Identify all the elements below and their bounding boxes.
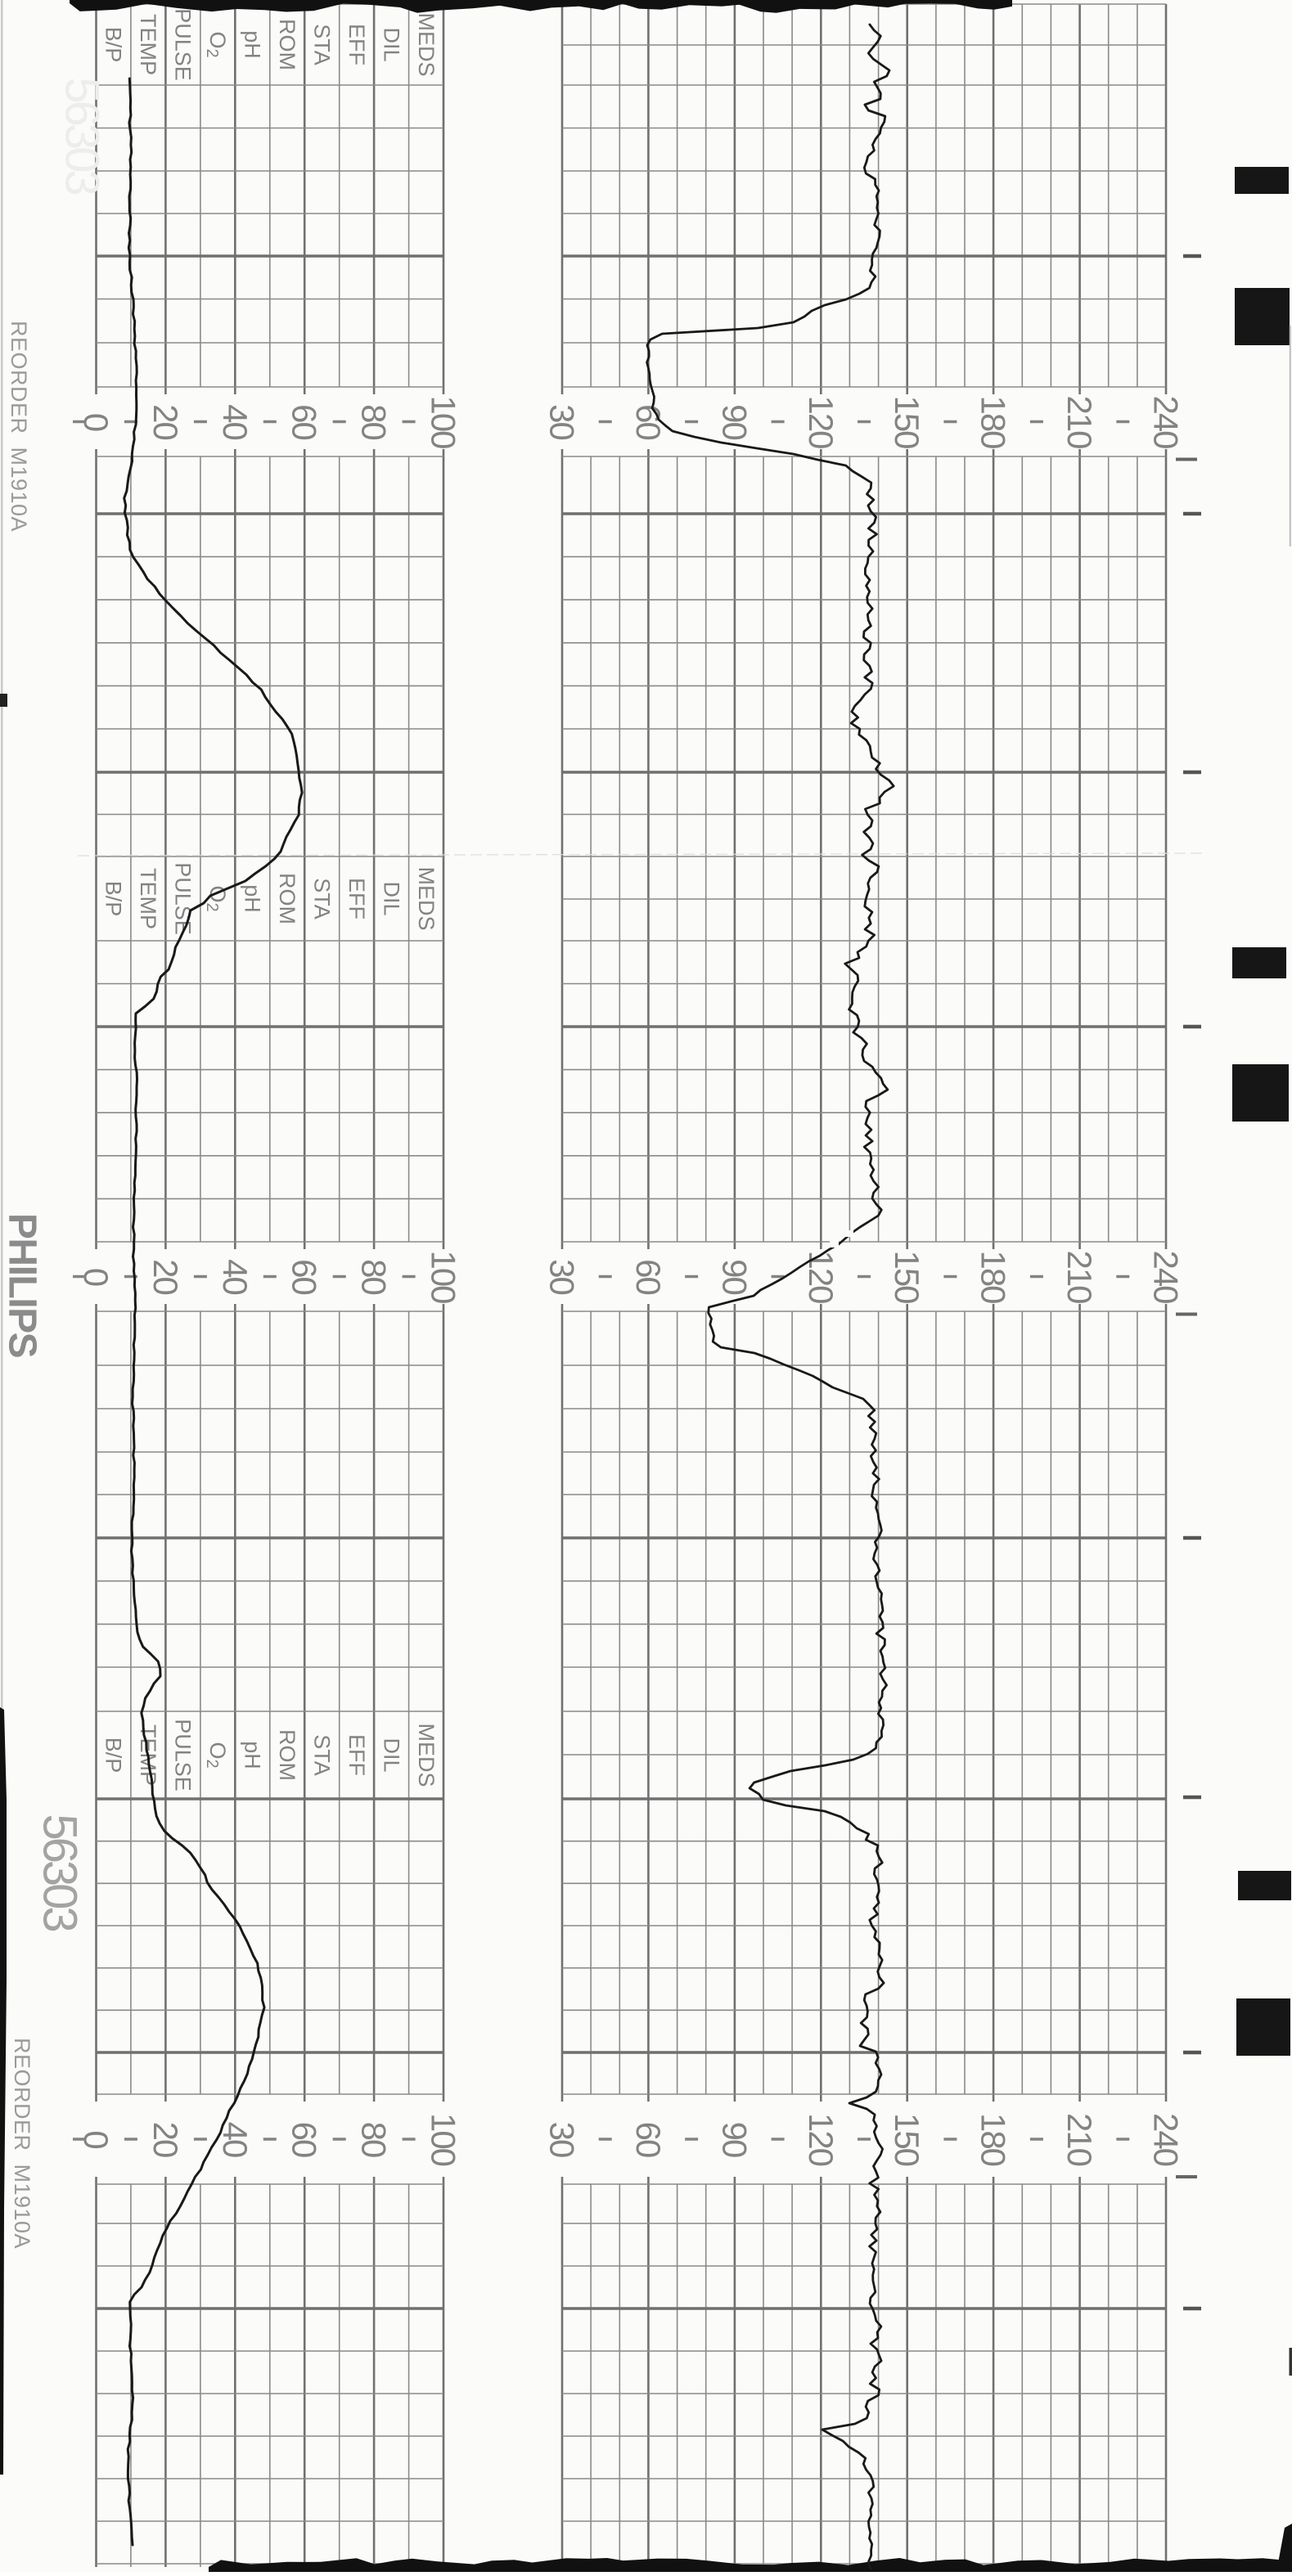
- svg-text:PULSE: PULSE: [171, 862, 196, 935]
- svg-text:PULSE: PULSE: [171, 8, 196, 81]
- svg-text:DIL: DIL: [379, 881, 403, 915]
- svg-text:MEDS: MEDS: [414, 1723, 439, 1787]
- svg-text:20: 20: [146, 2122, 185, 2157]
- svg-text:MEDS: MEDS: [414, 12, 439, 76]
- svg-text:30: 30: [543, 2122, 582, 2157]
- svg-text:STA: STA: [309, 1734, 334, 1776]
- svg-text:180: 180: [975, 1250, 1013, 1303]
- svg-text:REORDER M1910A: REORDER M1910A: [10, 2038, 34, 2249]
- svg-text:180: 180: [975, 2113, 1013, 2166]
- svg-text:pH: pH: [241, 884, 265, 913]
- svg-text:40: 40: [216, 404, 254, 439]
- svg-text:90: 90: [715, 404, 754, 439]
- svg-text:100: 100: [425, 2113, 463, 2166]
- svg-text:TEMP: TEMP: [136, 14, 160, 75]
- svg-text:20: 20: [146, 1259, 185, 1294]
- svg-text:120: 120: [802, 395, 840, 448]
- svg-text:56303: 56303: [34, 1814, 87, 1931]
- svg-text:120: 120: [802, 1250, 840, 1303]
- svg-text:20: 20: [146, 404, 185, 439]
- svg-text:240: 240: [1147, 2113, 1186, 2166]
- svg-text:pH: pH: [241, 30, 265, 59]
- svg-text:56303: 56303: [56, 77, 109, 194]
- svg-text:240: 240: [1147, 1250, 1186, 1303]
- svg-text:STA: STA: [309, 878, 334, 919]
- svg-text:EFF: EFF: [344, 878, 369, 919]
- svg-text:ROM: ROM: [275, 1729, 299, 1781]
- svg-text:80: 80: [355, 1259, 394, 1294]
- svg-text:TEMP: TEMP: [136, 868, 160, 929]
- svg-text:210: 210: [1060, 1250, 1099, 1303]
- svg-text:80: 80: [355, 2122, 394, 2157]
- svg-text:ROM: ROM: [275, 19, 299, 70]
- svg-text:80: 80: [355, 404, 394, 439]
- svg-text:STA: STA: [309, 24, 334, 65]
- svg-text:pH: pH: [241, 1741, 265, 1769]
- svg-text:ROM: ROM: [275, 873, 299, 924]
- svg-text:180: 180: [975, 395, 1013, 448]
- svg-text:90: 90: [715, 2122, 754, 2157]
- svg-text:DIL: DIL: [379, 1738, 403, 1772]
- svg-text:B/P: B/P: [101, 1738, 126, 1774]
- svg-text:60: 60: [286, 1259, 324, 1294]
- svg-text:B/P: B/P: [101, 881, 126, 917]
- svg-text:150: 150: [888, 395, 926, 448]
- svg-text:240: 240: [1147, 395, 1186, 448]
- svg-text:PHILIPS: PHILIPS: [1, 1213, 44, 1358]
- svg-text:100: 100: [425, 395, 463, 448]
- svg-text:210: 210: [1060, 2113, 1099, 2166]
- svg-text:100: 100: [425, 1250, 463, 1303]
- svg-text:EFF: EFF: [344, 24, 369, 65]
- svg-text:150: 150: [888, 2113, 926, 2166]
- svg-text:REORDER M1910A: REORDER M1910A: [7, 321, 31, 532]
- svg-text:PULSE: PULSE: [171, 1719, 196, 1792]
- svg-text:210: 210: [1060, 395, 1099, 448]
- svg-text:60: 60: [629, 2122, 668, 2157]
- svg-text:60: 60: [286, 2122, 324, 2157]
- svg-text:EFF: EFF: [344, 1734, 369, 1776]
- svg-text:40: 40: [216, 1259, 254, 1294]
- svg-text:B/P: B/P: [101, 27, 126, 63]
- svg-text:90: 90: [715, 1259, 754, 1294]
- svg-text:30: 30: [543, 404, 582, 439]
- svg-text:MEDS: MEDS: [414, 866, 439, 930]
- svg-text:30: 30: [543, 1259, 582, 1294]
- svg-text:120: 120: [802, 2113, 840, 2166]
- svg-text:DIL: DIL: [379, 27, 403, 61]
- svg-text:60: 60: [286, 404, 324, 439]
- svg-text:150: 150: [888, 1250, 926, 1303]
- svg-text:60: 60: [629, 1259, 668, 1294]
